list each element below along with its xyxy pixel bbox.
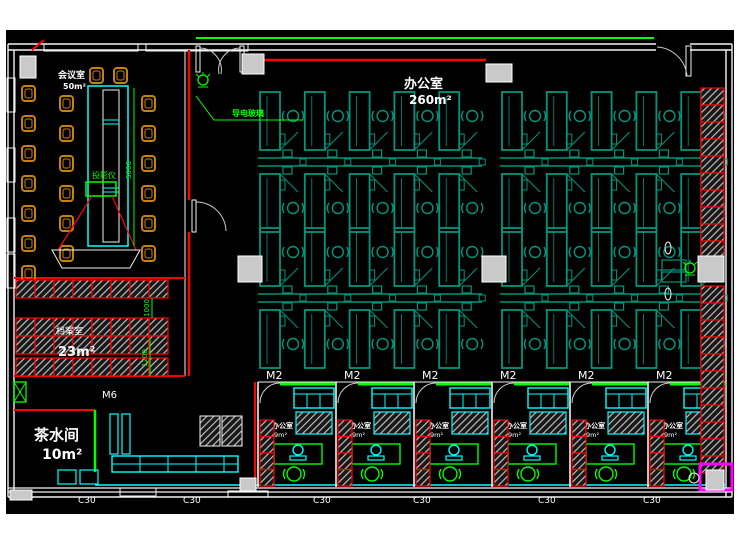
shelf-cell: [149, 358, 168, 376]
shelf-cell: [16, 336, 35, 354]
structural-column: [240, 478, 256, 491]
pilaster-cell: [572, 453, 586, 470]
door-tag-m2: M2: [500, 369, 517, 382]
structural-column: [238, 256, 262, 282]
pilaster-cell: [338, 437, 352, 454]
shelf-cell: [701, 405, 724, 422]
shelf-cell: [701, 241, 724, 258]
shelf-cell: [701, 207, 724, 224]
pilaster-cell: [494, 437, 508, 454]
pilaster-cell: [494, 470, 508, 487]
shelf-cell: [701, 439, 724, 456]
pilaster-cell: [260, 420, 274, 437]
hatched-mat: [296, 412, 332, 434]
projector-label: 投影仪: [92, 170, 116, 180]
door-tag-m2: M2: [578, 369, 595, 382]
window-tag-bottom: C30: [78, 496, 96, 506]
shelf-cell: [149, 318, 168, 336]
hatched-mat: [452, 412, 488, 434]
shelf-cell: [54, 358, 73, 376]
door-tag-m2: M2: [266, 369, 283, 382]
room-area-small-office: 9m²: [352, 431, 365, 439]
window-tag-bottom: C30: [538, 496, 556, 506]
room-label-small-office: 办公室: [584, 421, 605, 430]
shelf-cell: [111, 280, 130, 298]
window-tag-bottom: C30: [313, 496, 331, 506]
room-label-tea: 茶水间: [34, 426, 79, 444]
pilaster-cell: [416, 453, 430, 470]
pilaster-cell: [494, 453, 508, 470]
shelf-cell: [35, 336, 54, 354]
door-tag-m2: M2: [344, 369, 361, 382]
structural-column: [482, 256, 506, 282]
shelf-cell: [111, 336, 130, 354]
pilaster-cell: [572, 420, 586, 437]
pilaster-cell: [650, 453, 664, 470]
window-tag-left: C12: [0, 87, 7, 103]
room-area-conference: 50m²: [63, 82, 86, 91]
room-area-small-office: 9m²: [664, 431, 677, 439]
room-label-small-office: 办公室: [662, 421, 683, 430]
room-area-small-office: 9m²: [430, 431, 443, 439]
pilaster-cell: [494, 420, 508, 437]
shelf-cell: [701, 320, 724, 337]
pilaster-cell: [260, 437, 274, 454]
dim-text: 1200: [141, 349, 149, 367]
hatched-mat: [374, 412, 410, 434]
window-tag-left: C08: [0, 157, 7, 173]
room-label-small-office: 办公室: [272, 421, 293, 430]
pilaster-cell: [416, 470, 430, 487]
room-label-small-office: 办公室: [506, 421, 527, 430]
shelf-cell: [701, 224, 724, 241]
floor-plan-drawing: C12C08C08C12C30C30C30C30C30C30M6投影仪5000会…: [0, 0, 740, 555]
pilaster-cell: [338, 470, 352, 487]
structural-column: [242, 54, 264, 74]
cad-floor-plan: C12C08C08C12C30C30C30C30C30C30M6投影仪5000会…: [0, 0, 740, 555]
shelf-cell: [701, 286, 724, 303]
shelf-cell: [701, 105, 724, 122]
pilaster-cell: [572, 470, 586, 487]
window-tag-bottom: C30: [413, 496, 431, 506]
shelf-cell: [73, 358, 92, 376]
shelf-cell: [92, 280, 111, 298]
hatched-mat: [530, 412, 566, 434]
window-tag-left: C12: [0, 263, 7, 279]
shelf-cell: [701, 122, 724, 139]
shelf-cell: [54, 280, 73, 298]
pilaster-cell: [338, 453, 352, 470]
hatched-mat: [608, 412, 644, 434]
pilaster-cell: [650, 470, 664, 487]
room-area-small-office: 9m²: [586, 431, 599, 439]
shelf-cell: [73, 280, 92, 298]
shelf-cell: [701, 371, 724, 388]
room-label-main-office: 办公室: [404, 76, 443, 92]
pilaster-cell: [572, 437, 586, 454]
room-area-archive: 23m²: [58, 345, 95, 360]
structural-column: [486, 64, 512, 82]
pilaster-cell: [338, 420, 352, 437]
shelf-cell: [16, 318, 35, 336]
door-tag-m6: M6: [102, 390, 117, 401]
pilaster-cell: [260, 470, 274, 487]
shelf-cell: [701, 303, 724, 320]
shelf-cell: [16, 280, 35, 298]
dim-text: 5000: [125, 161, 133, 179]
room-label-conference: 会议室: [58, 69, 85, 81]
shelf-cell: [35, 318, 54, 336]
room-area-small-office: 9m²: [508, 431, 521, 439]
shelf-cell: [701, 173, 724, 190]
door-tag-m2: M2: [656, 369, 673, 382]
shelf-cell: [16, 358, 35, 376]
room-label-small-office: 办公室: [350, 421, 371, 430]
shelf-cell: [701, 422, 724, 439]
structural-column: [10, 490, 32, 500]
room-label-small-office: 办公室: [428, 421, 449, 430]
structural-column: [20, 56, 36, 78]
shelf-cell: [92, 358, 111, 376]
pilaster-cell: [650, 437, 664, 454]
room-label-archive: 档案室: [56, 325, 83, 337]
shelf-cell: [701, 156, 724, 173]
pilaster-cell: [416, 420, 430, 437]
shelf-cell: [701, 354, 724, 371]
shelf-cell: [92, 318, 111, 336]
window-tag-bottom: C30: [643, 496, 661, 506]
shelf-cell: [701, 190, 724, 207]
shelf-cell: [701, 88, 724, 105]
pilaster-cell: [260, 453, 274, 470]
room-area-main-office: 260m²: [409, 93, 452, 107]
pilaster-cell: [416, 437, 430, 454]
shelf-cell: [35, 280, 54, 298]
shelf-cell: [111, 358, 130, 376]
window-tag-bottom: C30: [183, 496, 201, 506]
shelf-cell: [130, 318, 149, 336]
room-area-small-office: 9m²: [274, 431, 287, 439]
glass-wall-note: 导电玻璃: [232, 108, 264, 118]
door-tag-m2: M2: [422, 369, 439, 382]
corner-column: [706, 470, 724, 490]
pilaster-cell: [650, 420, 664, 437]
window-tag-left: C08: [0, 227, 7, 243]
room-area-tea: 10m²: [42, 447, 82, 463]
shelf-cell: [701, 388, 724, 405]
shelf-cell: [701, 139, 724, 156]
dim-text: 1000: [143, 299, 151, 317]
hatched-mat: [222, 416, 242, 446]
shelf-cell: [149, 336, 168, 354]
structural-column: [698, 256, 724, 282]
shelf-cell: [149, 280, 168, 298]
shelf-cell: [701, 337, 724, 354]
shelf-cell: [111, 318, 130, 336]
shelf-cell: [35, 358, 54, 376]
shelf-cell: [130, 280, 149, 298]
hatched-mat: [200, 416, 220, 446]
